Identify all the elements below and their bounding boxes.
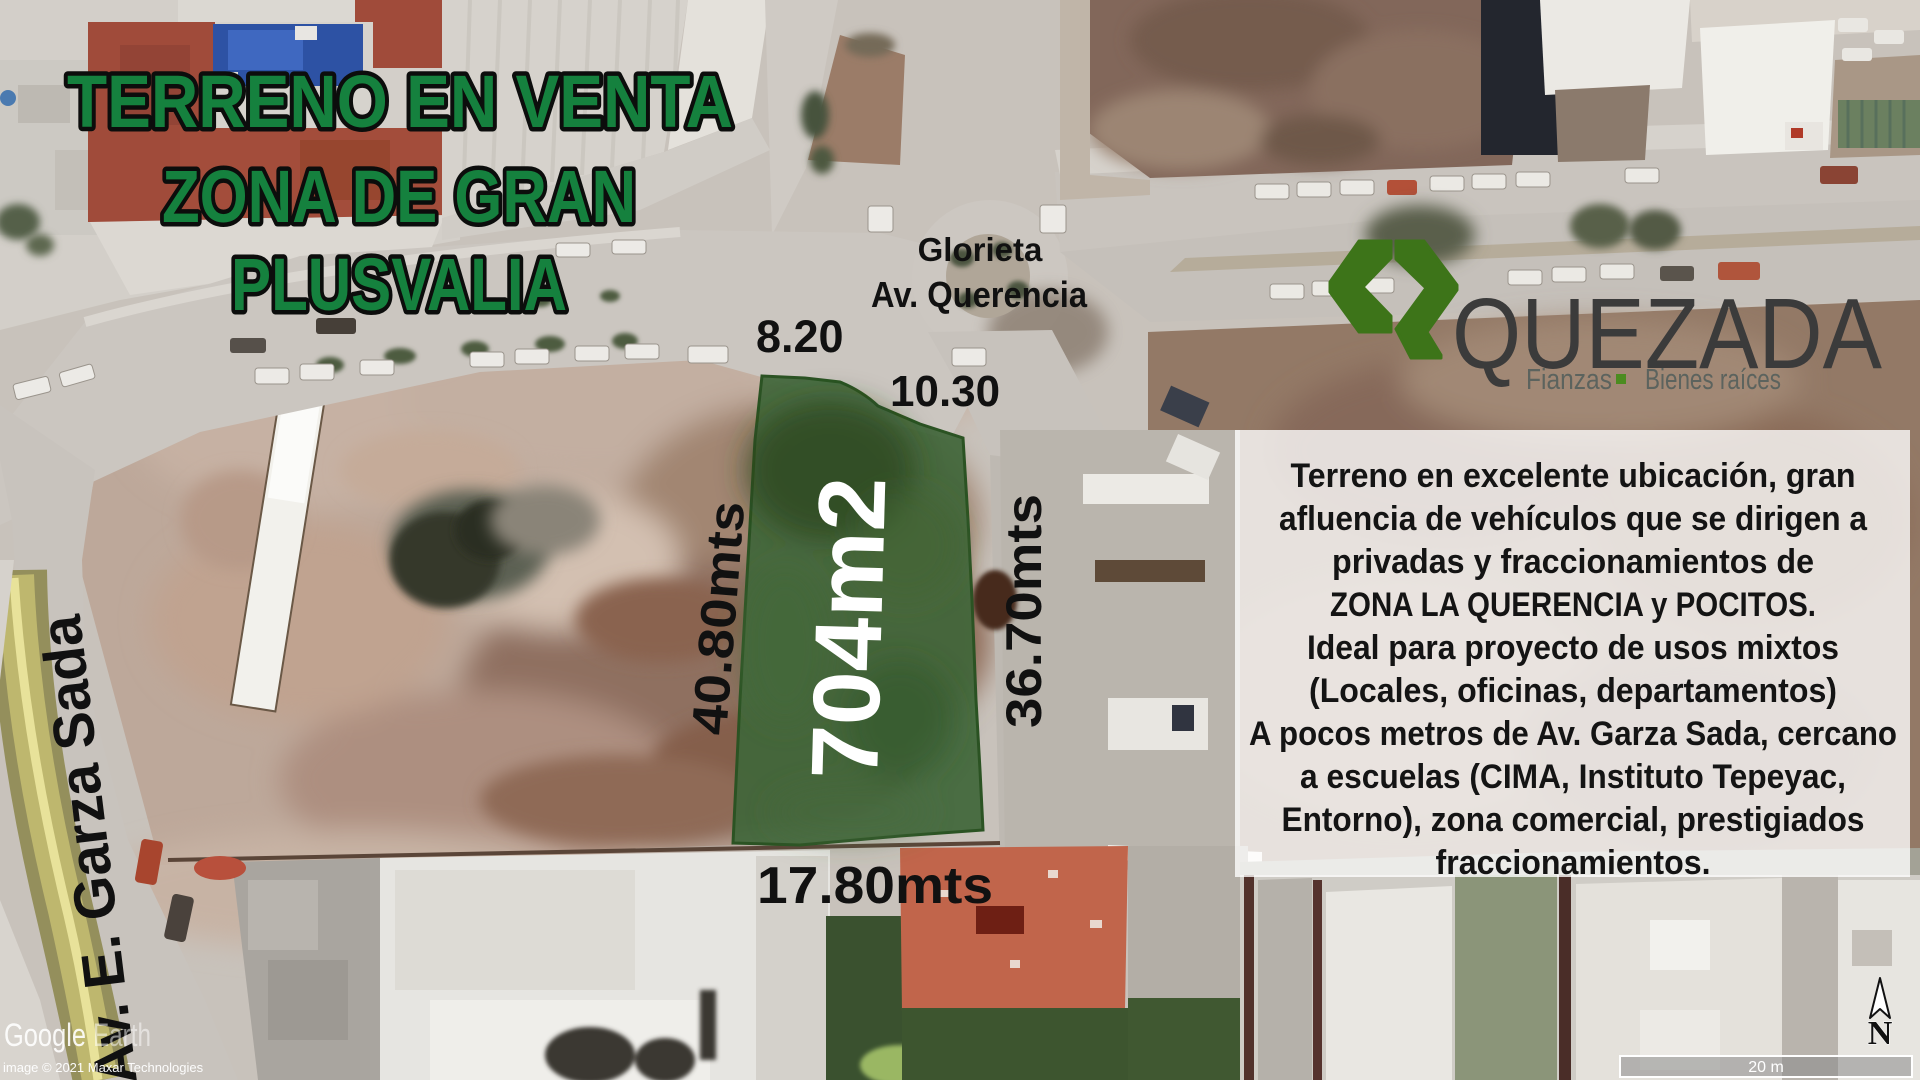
svg-text:8.20: 8.20 [756,311,844,362]
svg-text:privadas y fraccionamientos de: privadas y fraccionamientos de [1332,543,1814,581]
svg-text:PLUSVALIA: PLUSVALIA [231,243,567,326]
svg-text:36.70mts: 36.70mts [996,494,1052,728]
svg-text:20 m: 20 m [1748,1059,1784,1076]
svg-text:ZONA DE GRAN: ZONA DE GRAN [162,155,636,238]
svg-text:Earth: Earth [93,1017,151,1053]
svg-text:10.30: 10.30 [890,367,1000,416]
svg-text:A pocos metros de Av. Garza Sa: A pocos metros de Av. Garza Sada, cercan… [1249,715,1897,753]
svg-text:ZONA LA QUERENCIA y POCITOS.: ZONA LA QUERENCIA y POCITOS. [1330,586,1816,624]
svg-text:a escuelas (CIMA, Instituto Te: a escuelas (CIMA, Instituto Tepeyac, [1300,758,1846,796]
svg-text:Google: Google [4,1017,86,1053]
svg-text:TERRENO EN VENTA: TERRENO EN VENTA [67,60,733,143]
svg-text:17.80mts: 17.80mts [757,857,993,915]
svg-text:afluencia de vehículos que se: afluencia de vehículos que se dirigen a [1279,500,1868,538]
svg-text:Ideal para proyecto de usos mi: Ideal para proyecto de usos mixtos [1307,629,1839,667]
svg-text:fraccionamientos.: fraccionamientos. [1436,844,1711,882]
svg-text:Av. Querencia: Av. Querencia [871,274,1088,315]
svg-text:(Locales, oficinas, departamen: (Locales, oficinas, departamentos) [1309,672,1837,710]
svg-text:Terreno en excelente ubicación: Terreno en excelente ubicación, gran [1291,457,1856,495]
svg-text:Fianzas: Fianzas [1526,364,1612,396]
svg-text:Entorno), zona comercial, pres: Entorno), zona comercial, prestigiados [1282,801,1865,839]
svg-text:image © 2021 Maxar Technologie: image © 2021 Maxar Technologies [3,1060,204,1075]
svg-text:N: N [1868,1015,1893,1052]
svg-text:Bienes raíces: Bienes raíces [1645,364,1781,396]
svg-text:Glorieta: Glorieta [918,231,1043,268]
svg-text:704m2: 704m2 [792,476,906,781]
